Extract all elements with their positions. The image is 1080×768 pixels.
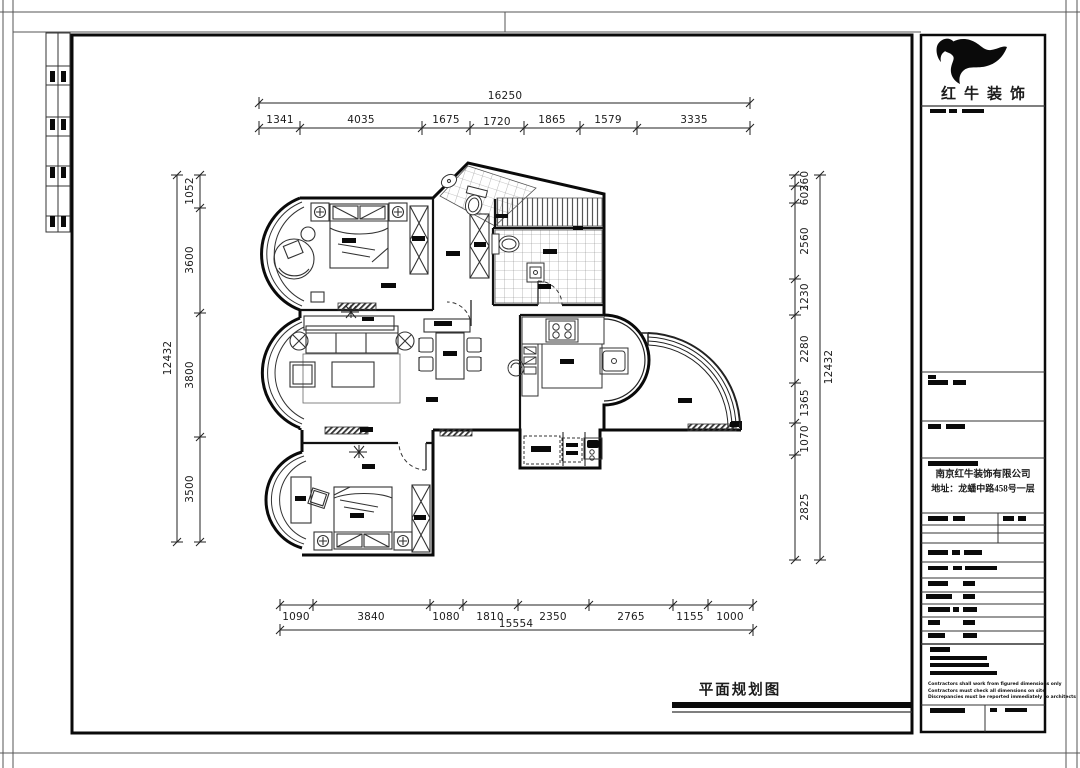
revision-strip [46,33,70,232]
tv-bench [304,316,394,330]
drawing-border [72,35,912,733]
dim-top-seg-5: 1579 [594,114,622,126]
dim-bottom-seg-6: 1155 [676,611,704,623]
rhino-logo-icon [937,39,1007,84]
title-block [921,35,1045,732]
dim-right-seg-1: 602 [799,185,811,206]
dim-right-seg-4: 2280 [799,335,811,363]
window-sills [325,303,736,436]
dim-bottom-total: 15554 [499,618,533,630]
dim-bottom-seg-7: 1000 [716,611,744,623]
dim-top-seg-1: 4035 [347,114,375,126]
dim-top-seg-4: 1865 [538,114,566,126]
light-symbols [341,305,367,458]
sink [600,348,628,374]
general-notes: Contractors shall work from figured dime… [928,682,1076,702]
washbasin-2 [527,263,544,282]
dim-left-total: 12432 [162,341,174,375]
dim-right-seg-5: 1365 [799,389,811,417]
dim-bottom-seg-5: 2765 [617,611,645,623]
dim-bottom-seg-2: 1080 [432,611,460,623]
dim-bottom-seg-4: 2350 [539,611,567,623]
dim-left-seg-3: 3500 [184,475,196,503]
dim-left-seg-0: 1052 [184,177,196,205]
title-underline [672,702,912,712]
note-line: Contractors shall work from figured dime… [928,682,1076,689]
stove [546,319,578,342]
toilet-2 [492,234,519,254]
side-table [290,362,315,387]
dim-right-seg-6: 1070 [799,425,811,453]
kitchen-peninsula [542,344,602,388]
dim-top-seg-0: 1341 [266,114,294,126]
dim-bottom-seg-1: 3840 [357,611,385,623]
cabinet [562,438,582,462]
redacted-text-bars [926,375,1027,713]
blueprint-page: 16250 1341 4035 1675 1720 1865 1579 3335… [0,0,1080,768]
kitchen-fixtures [508,317,628,396]
brand-name: 红牛装饰 [941,83,1033,104]
dim-right-seg-7: 2825 [799,493,811,521]
dim-top-seg-6: 3335 [680,114,708,126]
dim-right-total: 12432 [823,350,835,384]
company-address: 地址：龙蟠中路458号一层 [931,482,1035,495]
bed-master [330,204,388,268]
dim-left-seg-2: 3800 [184,361,196,389]
rug [303,354,400,403]
dim-right-seg-2: 2560 [799,227,811,255]
coffee-table [332,362,374,387]
dim-top-seg-2: 1675 [432,114,460,126]
drawing-title: 平面规划图 [699,679,782,700]
dim-left-seg-1: 3600 [184,246,196,274]
living-room-furniture [290,316,481,403]
dim-top-total: 16250 [488,90,522,102]
stool [311,292,324,302]
note-line: Discrepancies must be reported immediate… [928,695,1076,702]
dim-top-seg-3: 1720 [483,116,511,128]
dim-bottom-seg-0: 1090 [282,611,310,623]
company-name: 南京红牛装饰有限公司 [935,466,1030,480]
round-chair [274,239,314,279]
dim-right-seg-3: 1230 [799,283,811,311]
scale-bar [930,109,984,113]
